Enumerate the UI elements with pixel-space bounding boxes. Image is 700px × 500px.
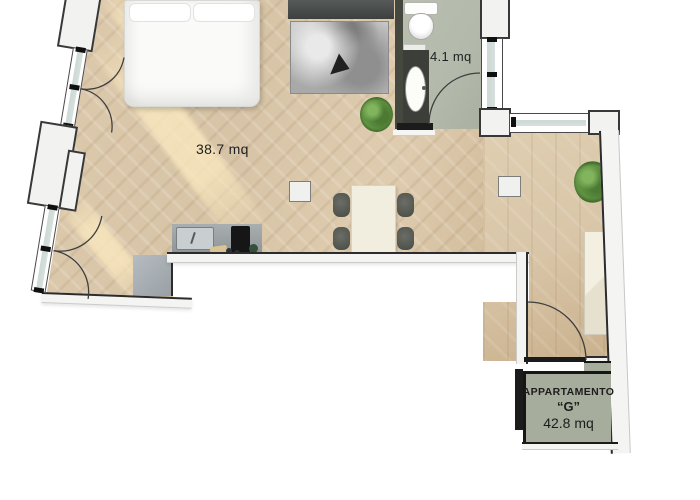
plant — [360, 97, 393, 132]
exterior-mask — [173, 262, 529, 302]
wall — [516, 252, 528, 364]
rug — [290, 21, 389, 94]
bathroom-wall — [397, 123, 433, 130]
window-frame — [487, 37, 497, 42]
wall — [480, 0, 510, 39]
kitchen-counter — [172, 224, 262, 255]
wall — [479, 108, 511, 137]
dining-table — [351, 185, 396, 254]
apartment-badge-area: 42.8 mq — [543, 415, 594, 431]
entry-door-opening — [524, 357, 588, 362]
window — [481, 38, 503, 111]
window — [509, 113, 590, 133]
window-frame — [34, 287, 45, 294]
rug-ornament — [328, 53, 350, 75]
faucet-icon — [422, 86, 426, 90]
bathroom-wall — [393, 130, 435, 136]
wall — [522, 442, 618, 450]
bathroom-area-label: 4.1 mq — [430, 49, 472, 64]
column — [498, 176, 521, 197]
apartment-badge-title: APPARTAMENTO — [523, 386, 615, 398]
apartment-badge-letter: “G” — [557, 399, 580, 414]
cooktop — [231, 226, 250, 253]
wall — [167, 252, 529, 263]
main-room-area-label: 38.7 mq — [196, 141, 249, 157]
tv-console — [288, 0, 394, 19]
wall — [515, 369, 523, 430]
window-frame — [511, 117, 516, 127]
window-glass — [513, 120, 586, 126]
chair — [397, 193, 414, 217]
column — [289, 181, 311, 202]
floor-plan: 38.7 mq 4.1 mq APPARTAMENTO “G” 42.8 mq — [0, 0, 700, 500]
chair — [333, 227, 350, 250]
window-frame — [487, 72, 497, 77]
chair — [333, 193, 350, 217]
apartment-badge: APPARTAMENTO “G” 42.8 mq — [523, 371, 611, 442]
chair — [397, 227, 414, 250]
toilet — [408, 13, 434, 40]
bathroom-wall — [395, 0, 403, 129]
kitchen-sink — [176, 227, 214, 250]
